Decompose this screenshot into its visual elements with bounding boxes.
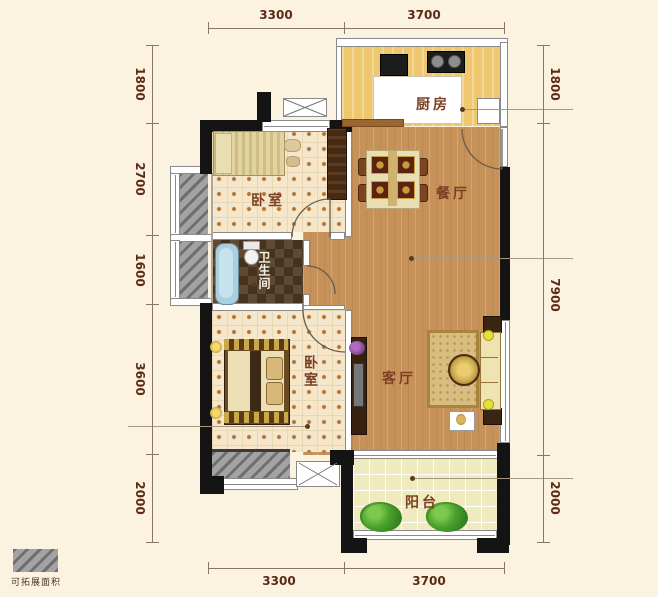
dim-line-right: [543, 45, 544, 542]
entry-threshold: [477, 98, 500, 124]
bed-ornate-band: [224, 339, 288, 350]
dim-tick: [146, 454, 159, 455]
ref-dot: [251, 282, 256, 287]
dim-tick: [146, 45, 159, 46]
dim-tick: [344, 562, 345, 574]
room-label-dining: 餐厅: [423, 183, 483, 203]
wall-ac-stub: [257, 92, 271, 122]
ref-dot: [460, 107, 465, 112]
dim-tick: [504, 562, 505, 574]
bathtub-inner: [219, 248, 233, 298]
dim-left-3: 1600: [133, 240, 147, 300]
dim-right-2: 7900: [548, 265, 562, 325]
dim-tick: [146, 123, 159, 124]
wardrobe: [327, 128, 347, 200]
dim-tick: [537, 123, 550, 124]
dim-top-1: 3300: [246, 8, 306, 22]
fridge: [380, 54, 408, 76]
dim-tick: [537, 542, 550, 543]
bay-inner-line: [211, 173, 213, 303]
tv: [353, 363, 364, 407]
balcony-sliding-door: [352, 450, 498, 459]
side-table: [483, 408, 502, 425]
bedroom-top-bottom-wall: [212, 232, 292, 240]
bedside-lamp: [210, 341, 222, 353]
dim-tick: [344, 22, 345, 34]
legend-expandable-label: 可拓展面积: [11, 575, 91, 588]
balcony-railing: [353, 530, 497, 540]
dim-tick: [146, 304, 159, 305]
expandable-area-left-lower: [180, 240, 208, 299]
burner-icon: [431, 55, 444, 68]
dim-tick: [208, 22, 209, 34]
dim-line-top: [208, 28, 504, 29]
sofa-pillow: [483, 330, 494, 341]
ac-platform-top-frame: [283, 98, 327, 117]
room-label-bedroom-bottom: 卧室: [300, 355, 320, 405]
room-label-bedroom-top: 卧室: [238, 190, 298, 210]
table-runner: [388, 151, 397, 206]
expandable-area-left-upper: [180, 173, 208, 235]
wall-left-upper: [200, 120, 212, 174]
place-setting: [397, 181, 415, 199]
wall-left-lower: [200, 303, 212, 479]
sofa-pillow: [483, 399, 494, 410]
burner-icon: [448, 55, 461, 68]
dim-bottom-2: 3700: [399, 574, 459, 588]
dim-left-1: 1800: [133, 54, 147, 114]
room-label-bathroom: 卫生间: [256, 251, 273, 309]
ref-dot: [409, 256, 414, 261]
wall-right-lower: [497, 443, 510, 545]
legend-expandable-swatch: [13, 549, 58, 572]
dim-right-3: 2000: [548, 468, 562, 528]
bathroom-right-wall-upper: [303, 240, 310, 266]
kitchen-left-wall: [336, 46, 342, 126]
bay-edge-line: [212, 449, 290, 452]
bed-runner: [250, 351, 261, 411]
wall-balcony-foot-left: [341, 538, 367, 553]
dim-left-4: 3600: [133, 349, 147, 409]
dim-tick: [537, 45, 550, 46]
room-label-balcony: 阳台: [392, 492, 452, 512]
round-table: [448, 354, 480, 386]
bedding-item: [286, 156, 300, 167]
dim-tick: [146, 542, 159, 543]
bed-pillow: [266, 382, 283, 405]
dim-left-5: 2000: [133, 468, 147, 528]
dim-line-left: [152, 45, 153, 542]
dim-right-1: 1800: [548, 54, 562, 114]
wall-balcony-foot-right: [477, 538, 509, 553]
floorplan-canvas: 厨房 餐厅 客厅 卧室 卧室 卫生间 阳台 3300 3700 3300 370…: [0, 0, 658, 597]
dining-right-wall: [500, 127, 508, 167]
leader-bedroom-bottom: [128, 426, 307, 427]
sofa-cushion-line: [481, 357, 498, 358]
room-label-living: 客厅: [369, 368, 429, 388]
bedside-lamp: [210, 407, 222, 419]
wall-corner-bottom-left: [200, 476, 224, 494]
kitchen-top-wall: [336, 38, 508, 47]
sofa: [480, 332, 501, 410]
wall-bay-right-stub: [330, 450, 354, 465]
bedding-item: [284, 139, 301, 152]
place-setting: [371, 156, 389, 174]
place-setting: [397, 156, 415, 174]
bed-pillow: [215, 133, 232, 174]
ref-dot: [410, 476, 415, 481]
dim-tick: [146, 235, 159, 236]
dim-bottom-1: 3300: [249, 574, 309, 588]
flower-decor: [349, 341, 365, 355]
ref-dot: [305, 424, 310, 429]
place-setting: [371, 181, 389, 199]
dim-tick: [504, 22, 505, 34]
dim-left-2: 2700: [133, 149, 147, 209]
expandable-area-bottom: [212, 452, 290, 479]
room-label-kitchen: 厨房: [403, 94, 463, 114]
bay-window-lower: [170, 240, 180, 299]
sofa-cushion-line: [481, 382, 498, 383]
dim-top-2: 3700: [394, 8, 454, 22]
leader-living: [411, 258, 573, 259]
dim-tick: [208, 562, 209, 574]
bed-ornate-band: [224, 412, 288, 423]
kitchen-right-wall: [500, 42, 508, 127]
wall-stub: [330, 232, 345, 240]
wall-right-mid: [500, 167, 510, 320]
dim-line-bottom: [208, 568, 504, 569]
dim-tick: [537, 455, 550, 456]
bed-pillow: [266, 357, 283, 380]
stool-cushion: [456, 414, 466, 425]
bedroom-bottom-door-leaf: [303, 305, 345, 310]
bay-window-upper: [170, 173, 180, 235]
kitchen-cabinet: [342, 119, 404, 127]
